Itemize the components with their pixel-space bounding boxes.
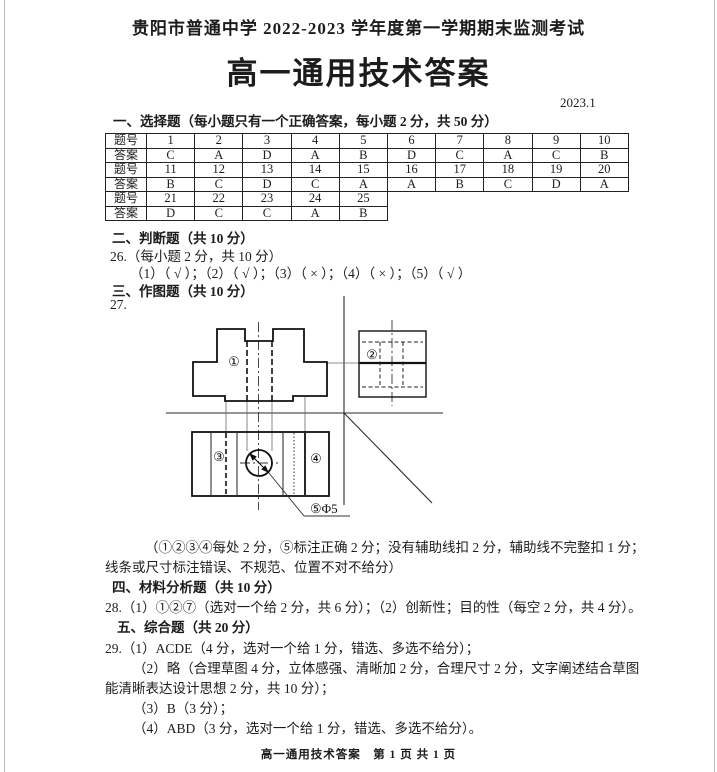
row-label: 答案 — [106, 177, 147, 192]
dimension-label: ⑤Φ5 — [310, 501, 338, 516]
answer-cell: C — [532, 148, 580, 163]
choice-table-full: 题号12345678910答案CADABDCACB题号1112131415161… — [105, 133, 629, 192]
answer-cell: B — [339, 206, 387, 221]
row-label: 题号 — [106, 163, 147, 178]
table-row: 答案BCDCAABCDA — [106, 177, 629, 192]
front-view-outline — [193, 329, 327, 401]
view-label-3: ③ — [213, 449, 225, 464]
view-label-1: ① — [228, 354, 240, 369]
page-footer: 高一通用技术答案 第 1 页 共 1 页 — [0, 746, 717, 762]
question-number-cell: 24 — [291, 192, 339, 207]
q29-answer-2b: 能清晰表达设计思想 2 分，共 10 分）； — [105, 677, 335, 697]
answer-cell: D — [243, 177, 291, 192]
answer-cell: A — [195, 148, 243, 163]
exam-header: 贵阳市普通中学 2022-2023 学年度第一学期期末监测考试 — [0, 14, 717, 39]
answer-cell: D — [532, 177, 580, 192]
q27-label: 27. — [110, 297, 127, 313]
answer-cell: D — [147, 206, 195, 221]
page-right-border — [714, 0, 715, 772]
section-2-header: 二、判断题（共 10 分） — [112, 227, 254, 247]
answer-cell: C — [291, 177, 339, 192]
question-number-cell: 12 — [195, 163, 243, 178]
q29-answer-4: （4）ABD（3 分，选对一个给 1 分，错选、多选不给分）。 — [133, 717, 482, 737]
answer-cell: B — [147, 177, 195, 192]
answer-cell: C — [195, 177, 243, 192]
answer-cell: A — [291, 148, 339, 163]
exam-date: 2023.1 — [560, 95, 596, 111]
question-number-cell: 19 — [532, 163, 580, 178]
section-4-header: 四、材料分析题（共 10 分） — [112, 576, 281, 596]
q29-answer-2a: （2）略（合理草图 4 分，立体感强、清晰加 2 分，合理尺寸 2 分，文字阐述… — [133, 657, 639, 677]
q28-answer: 28.（1）①②⑦（选对一个给 2 分，共 6 分）；（2）创新性；目的性（每空… — [105, 596, 642, 616]
question-number-cell: 10 — [580, 134, 628, 149]
question-number-cell: 9 — [532, 134, 580, 149]
answer-cell: A — [291, 206, 339, 221]
table-row: 题号2122232425 — [106, 192, 388, 207]
question-number-cell: 11 — [147, 163, 195, 178]
row-label: 题号 — [106, 192, 147, 207]
row-label: 答案 — [106, 148, 147, 163]
q29-answer-3: （3）B（3 分）； — [133, 697, 233, 717]
answer-cell: B — [580, 148, 628, 163]
question-number-cell: 15 — [339, 163, 387, 178]
answer-cell: C — [484, 177, 532, 192]
view-label-4: ④ — [310, 451, 322, 466]
q26-answers: （1）（ √ ）；（2）（ √ ）；（3）（ × ）；（4）（ × ）；（5）（… — [130, 262, 471, 282]
front-view-hidden-hole-lines — [247, 341, 272, 401]
question-number-cell: 20 — [580, 163, 628, 178]
page-title: 高一通用技术答案 — [0, 48, 717, 93]
section-5-header: 五、综合题（共 20 分） — [117, 616, 259, 636]
answer-cell: A — [387, 177, 435, 192]
answer-cell: A — [339, 177, 387, 192]
row-label: 题号 — [106, 134, 147, 149]
answer-cell: B — [339, 148, 387, 163]
answer-cell: C — [436, 148, 484, 163]
question-number-cell: 1 — [147, 134, 195, 149]
question-number-cell: 17 — [436, 163, 484, 178]
q27-scoring-line2: 线条或尺寸标注错误、不规范、位置不对不给分） — [105, 556, 402, 576]
answer-cell: B — [436, 177, 484, 192]
answer-cell: C — [243, 206, 291, 221]
view-label-2: ② — [366, 347, 378, 362]
question-number-cell: 21 — [147, 192, 195, 207]
answer-cell: A — [580, 177, 628, 192]
question-number-cell: 13 — [243, 163, 291, 178]
table-row: 题号11121314151617181920 — [106, 163, 629, 178]
question-number-cell: 14 — [291, 163, 339, 178]
orthographic-views-drawing: ① ② ③ ④ ⑤Φ5 — [150, 290, 450, 525]
section-1-header: 一、选择题（每小题只有一个正确答案，每小题 2 分，共 50 分） — [113, 110, 498, 130]
answer-cell: C — [195, 206, 243, 221]
answer-cell: D — [387, 148, 435, 163]
question-number-cell: 25 — [339, 192, 387, 207]
table-row: 答案DCCAB — [106, 206, 388, 221]
question-number-cell: 6 — [387, 134, 435, 149]
question-number-cell: 23 — [243, 192, 291, 207]
q29-answer-1: 29.（1）ACDE（4 分，选对一个给 1 分，错选、多选不给分）； — [105, 637, 479, 657]
table-row: 答案CADABDCACB — [106, 148, 629, 163]
question-number-cell: 18 — [484, 163, 532, 178]
answer-cell: D — [243, 148, 291, 163]
projection-lines — [226, 363, 359, 451]
table-row: 题号12345678910 — [106, 134, 629, 149]
question-number-cell: 7 — [436, 134, 484, 149]
answer-cell: C — [147, 148, 195, 163]
question-number-cell: 3 — [243, 134, 291, 149]
question-number-cell: 22 — [195, 192, 243, 207]
page-left-border — [4, 0, 5, 772]
question-number-cell: 16 — [387, 163, 435, 178]
question-number-cell: 4 — [291, 134, 339, 149]
question-number-cell: 2 — [195, 134, 243, 149]
q27-scoring-line1: （①②③④每处 2 分，⑤标注正确 2 分；没有辅助线扣 2 分，辅助线不完整扣… — [145, 536, 645, 556]
answer-cell: A — [484, 148, 532, 163]
question-number-cell: 8 — [484, 134, 532, 149]
row-label: 答案 — [106, 206, 147, 221]
question-number-cell: 5 — [339, 134, 387, 149]
choice-table-short: 题号2122232425答案DCCAB — [105, 191, 388, 221]
